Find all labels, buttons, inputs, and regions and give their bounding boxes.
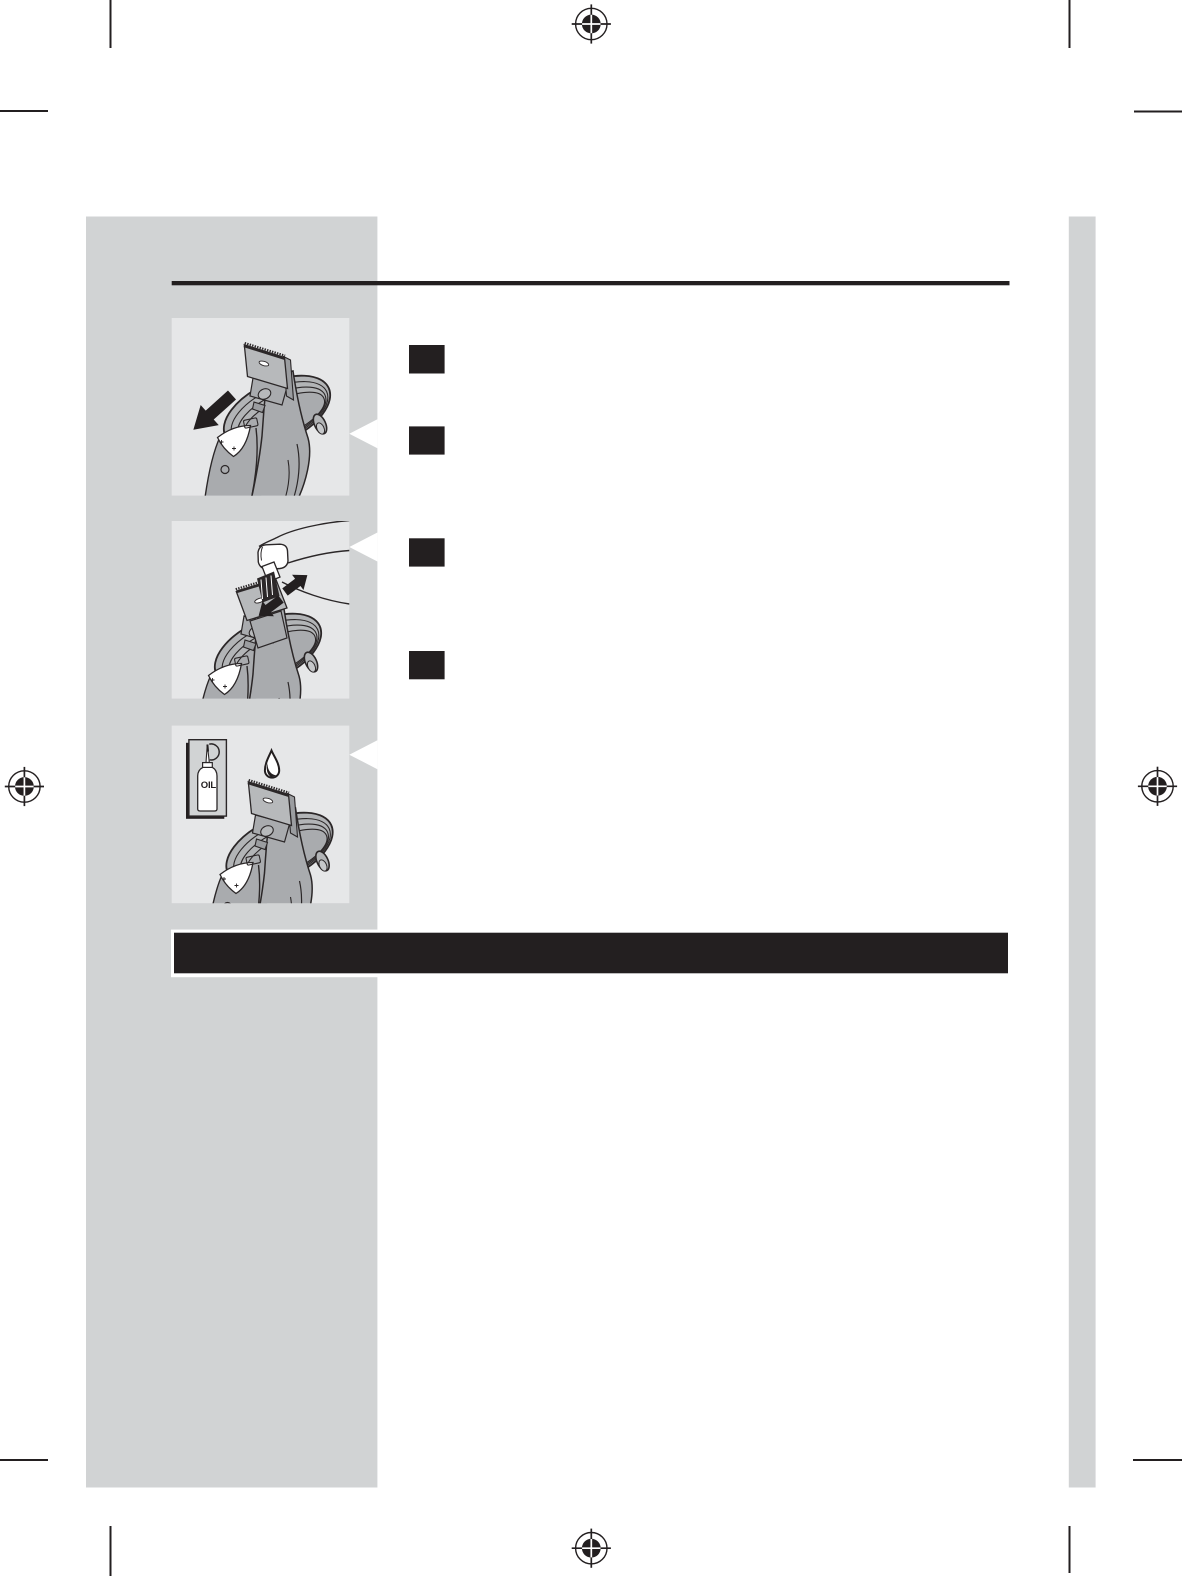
svg-text:OIL: OIL [201, 780, 217, 791]
